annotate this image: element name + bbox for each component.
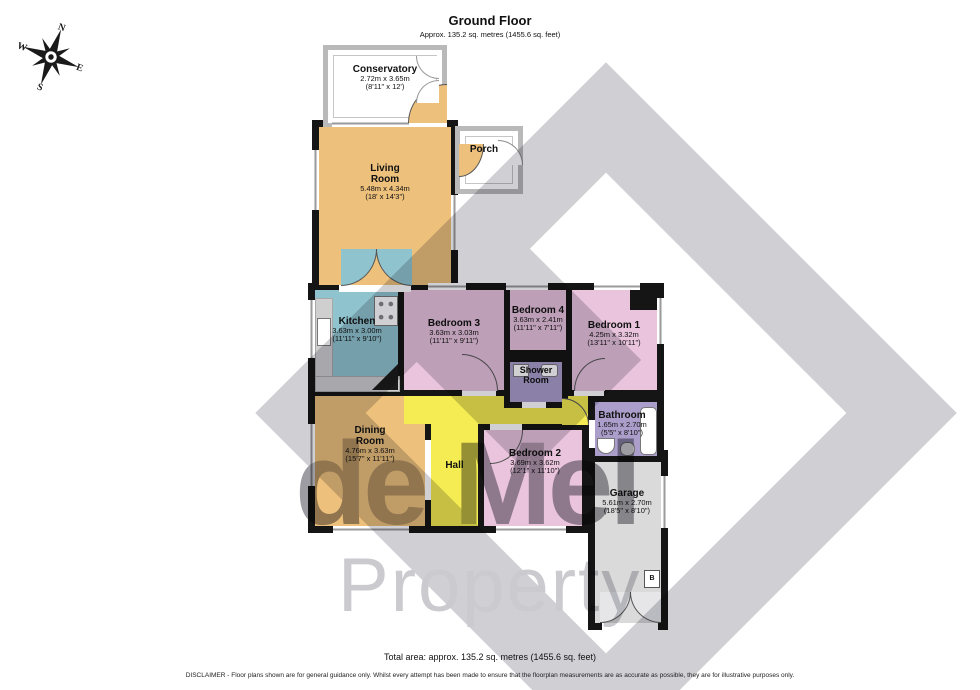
floor-area-subtitle: Approx. 135.2 sq. metres (1455.6 sq. fee…: [0, 30, 980, 39]
label-bathroom: Bathroom 1.65m x 2.70m (5'5" x 8'10"): [586, 410, 658, 438]
label-garage: Garage 5.61m x 2.70m (18'5" x 8'10"): [592, 488, 662, 516]
label-dining: Dining Room 4.76m x 3.63m (15'7" x 11'11…: [315, 425, 425, 464]
svg-text:N: N: [56, 22, 66, 34]
total-area-text: Total area: approx. 135.2 sq. metres (14…: [0, 652, 980, 662]
room-hall: [431, 424, 478, 526]
svg-text:S: S: [35, 81, 44, 92]
compass-rose-icon: N E S W: [16, 22, 86, 92]
window: [308, 424, 315, 486]
door-gap: [522, 402, 546, 408]
label-bedroom4: Bedroom 4 3.63m x 2.41m (11'11" x 7'11"): [508, 305, 568, 333]
window: [333, 526, 409, 533]
label-bedroom3: Bedroom 3 3.63m x 3.03m (11'11" x 9'11"): [404, 318, 504, 346]
window: [451, 195, 458, 250]
floor-title: Ground Floor: [0, 13, 980, 28]
label-living: Living Room 5.48m x 4.34m (18' x 14'3"): [329, 163, 441, 202]
window: [657, 298, 664, 344]
toilet-icon: [620, 442, 635, 456]
window: [332, 120, 410, 127]
window: [428, 283, 466, 290]
garage-door-opening: [602, 623, 658, 630]
disclaimer-text: DISCLAIMER - Floor plans shown are for g…: [0, 672, 980, 679]
label-porch: Porch: [455, 144, 513, 155]
kitchen-corner-counter: [372, 364, 398, 390]
label-bedroom1: Bedroom 1 4.25m x 3.32m (13'11" x 10'11"…: [570, 320, 658, 348]
window: [506, 283, 548, 290]
bedroom1-notch: [630, 290, 657, 310]
window: [661, 476, 668, 528]
door-gap: [339, 285, 411, 292]
floorplan: Ground Floor Approx. 135.2 sq. metres (1…: [0, 0, 980, 690]
boiler-box: B: [644, 570, 660, 588]
window: [308, 300, 315, 358]
window: [312, 150, 319, 210]
page-title: Ground Floor Approx. 135.2 sq. metres (1…: [0, 13, 980, 39]
svg-text:E: E: [75, 62, 85, 75]
label-conservatory: Conservatory 2.72m x 3.65m (8'11" x 12'): [329, 64, 441, 92]
label-shower: Shower Room: [506, 366, 566, 386]
label-bedroom2: Bedroom 2 3.69m x 3.62m (12'1" x 11'10"): [486, 448, 584, 476]
label-kitchen: Kitchen 3.63m x 3.00m (11'11" x 9'10"): [317, 316, 397, 344]
svg-text:W: W: [16, 40, 29, 54]
window: [594, 283, 640, 290]
boiler-label: B: [649, 575, 654, 582]
window: [496, 526, 566, 533]
label-hall: Hall: [431, 460, 478, 471]
